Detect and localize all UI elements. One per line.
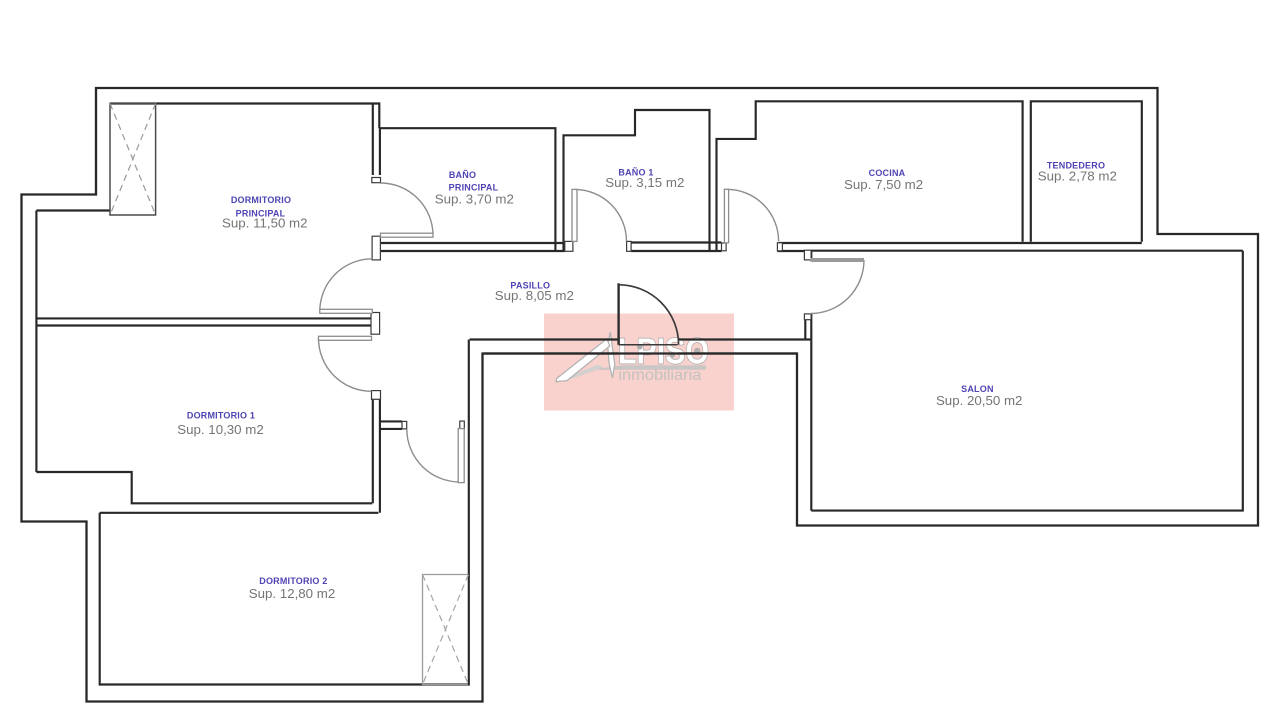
svg-text:DORMITORIO 2: DORMITORIO 2 bbox=[259, 576, 327, 586]
svg-text:Sup. 20,50 m2: Sup. 20,50 m2 bbox=[936, 393, 1023, 408]
svg-text:Sup. 12,80 m2: Sup. 12,80 m2 bbox=[249, 586, 336, 601]
svg-text:Sup. 7,50 m2: Sup. 7,50 m2 bbox=[844, 177, 923, 192]
svg-text:DORMITORIO: DORMITORIO bbox=[231, 195, 291, 205]
svg-text:DORMITORIO 1: DORMITORIO 1 bbox=[187, 410, 255, 420]
svg-text:Sup. 3,15 m2: Sup. 3,15 m2 bbox=[605, 175, 684, 190]
svg-text:Sup. 3,70 m2: Sup. 3,70 m2 bbox=[435, 192, 514, 207]
svg-text:Sup. 8,05 m2: Sup. 8,05 m2 bbox=[495, 288, 574, 303]
svg-text:BAÑO: BAÑO bbox=[449, 170, 476, 180]
svg-text:Sup. 2,78 m2: Sup. 2,78 m2 bbox=[1038, 169, 1117, 184]
svg-text:Sup. 10,30 m2: Sup. 10,30 m2 bbox=[177, 422, 264, 437]
svg-text:inmobiliaria: inmobiliaria bbox=[618, 367, 701, 384]
svg-text:Sup. 11,50 m2: Sup. 11,50 m2 bbox=[222, 216, 308, 231]
